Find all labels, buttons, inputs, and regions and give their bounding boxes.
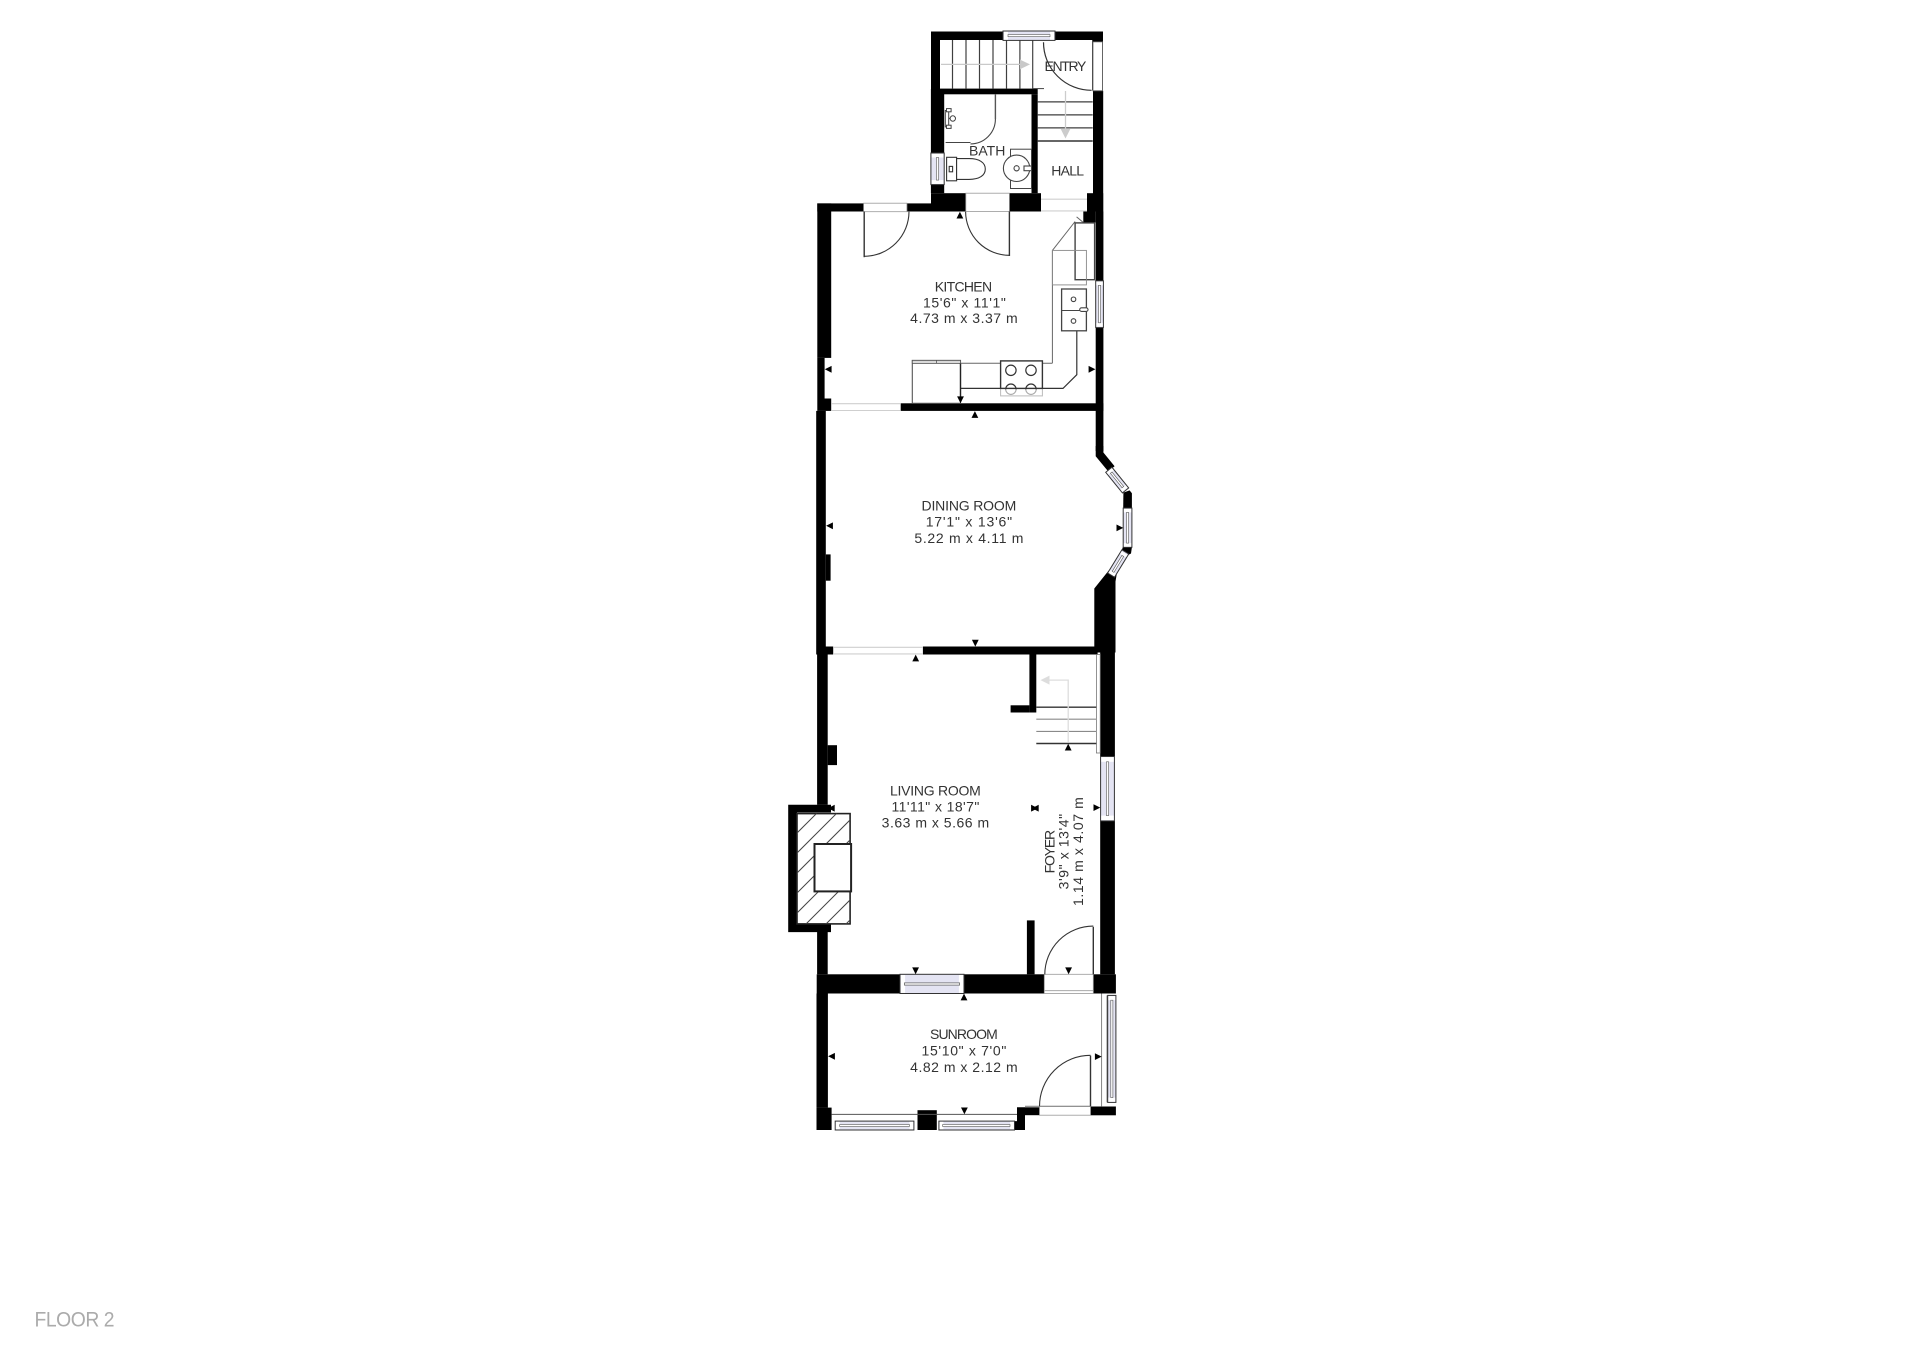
svg-text:ENTRY: ENTRY: [1045, 58, 1087, 74]
svg-text:5.22 m x 4.11 m: 5.22 m x 4.11 m: [914, 530, 1023, 546]
svg-text:4.82 m x 2.12 m: 4.82 m x 2.12 m: [910, 1059, 1018, 1075]
svg-text:FLOOR 2: FLOOR 2: [35, 1308, 115, 1332]
svg-text:3.63 m x 5.66 m: 3.63 m x 5.66 m: [882, 814, 990, 830]
svg-text:4.73 m x 3.37 m: 4.73 m x 3.37 m: [910, 310, 1018, 326]
svg-text:11'11" x 18'7": 11'11" x 18'7": [892, 798, 980, 814]
svg-text:BATH: BATH: [969, 143, 1006, 159]
svg-text:KITCHEN: KITCHEN: [935, 279, 993, 295]
svg-text:HALL: HALL: [1051, 163, 1084, 179]
svg-text:1.14 m x 4.07 m: 1.14 m x 4.07 m: [1070, 797, 1086, 906]
svg-text:LIVING ROOM: LIVING ROOM: [890, 782, 981, 798]
svg-text:DINING ROOM: DINING ROOM: [922, 497, 1017, 513]
svg-text:17'1" x 13'6": 17'1" x 13'6": [926, 514, 1013, 530]
svg-text:15'6" x 11'1": 15'6" x 11'1": [923, 294, 1006, 310]
svg-text:15'10" x 7'0": 15'10" x 7'0": [922, 1043, 1007, 1059]
svg-text:SUNROOM: SUNROOM: [930, 1026, 998, 1042]
